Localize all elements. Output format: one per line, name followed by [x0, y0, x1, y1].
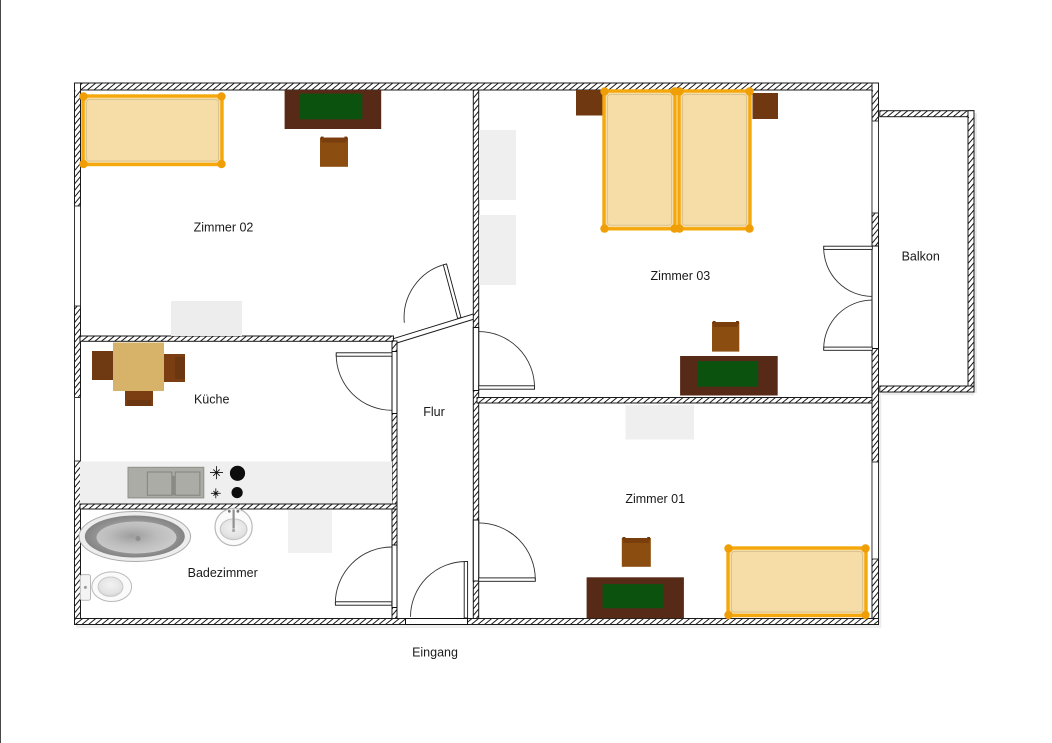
svg-text:Eingang: Eingang	[412, 646, 458, 660]
svg-text:Flur: Flur	[423, 405, 445, 419]
svg-text:Badezimmer: Badezimmer	[188, 566, 258, 580]
svg-text:Küche: Küche	[194, 393, 229, 407]
svg-text:Zimmer 03: Zimmer 03	[651, 269, 711, 283]
svg-text:Zimmer 02: Zimmer 02	[194, 221, 254, 235]
svg-text:Balkon: Balkon	[902, 250, 940, 264]
svg-text:Zimmer 01: Zimmer 01	[625, 492, 685, 506]
